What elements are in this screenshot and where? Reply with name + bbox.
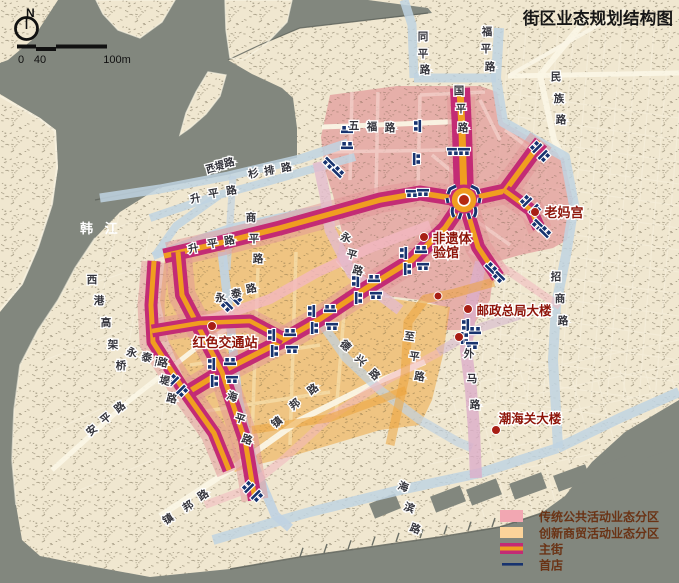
svg-text:老妈宫: 老妈宫	[543, 205, 583, 220]
svg-text:桥: 桥	[116, 359, 127, 372]
svg-text:验馆: 验馆	[433, 245, 459, 260]
svg-text:潮海关大楼: 潮海关大楼	[499, 411, 562, 426]
svg-text:招: 招	[551, 270, 562, 283]
svg-text:韩 江: 韩 江	[80, 221, 122, 236]
svg-text:国: 国	[454, 85, 465, 97]
svg-text:福: 福	[481, 25, 493, 38]
svg-text:非遗体: 非遗体	[432, 231, 472, 246]
svg-text:路: 路	[420, 63, 431, 76]
svg-text:40: 40	[34, 54, 46, 66]
svg-text:创新商贸活动业态分区: 创新商贸活动业态分区	[538, 526, 659, 541]
svg-text:平: 平	[456, 103, 467, 115]
svg-text:同: 同	[418, 31, 429, 43]
svg-text:高: 高	[101, 316, 112, 329]
svg-text:外: 外	[463, 347, 475, 360]
svg-text:架: 架	[107, 338, 119, 351]
svg-text:路: 路	[253, 252, 264, 265]
svg-text:路: 路	[556, 113, 567, 126]
svg-text:平: 平	[481, 43, 492, 55]
svg-text:平: 平	[418, 48, 429, 60]
svg-text:路: 路	[485, 60, 496, 73]
svg-text:路: 路	[558, 314, 569, 327]
svg-text:路: 路	[458, 121, 469, 134]
svg-text:路: 路	[385, 121, 396, 134]
svg-text:平: 平	[249, 233, 260, 245]
svg-text:首店: 首店	[539, 558, 563, 573]
svg-text:路: 路	[470, 398, 481, 411]
svg-text:马: 马	[467, 373, 478, 385]
svg-text:商: 商	[555, 292, 566, 305]
svg-text:西: 西	[87, 274, 98, 286]
svg-text:族: 族	[554, 92, 565, 105]
svg-text:0: 0	[18, 54, 24, 66]
svg-text:五: 五	[349, 120, 360, 132]
svg-text:邮政总局大楼: 邮政总局大楼	[476, 303, 552, 318]
svg-text:主街: 主街	[539, 542, 563, 557]
svg-text:100m: 100m	[103, 54, 131, 66]
svg-text:传统公共活动业态分区: 传统公共活动业态分区	[538, 509, 659, 524]
svg-text:商: 商	[246, 211, 257, 224]
svg-text:民: 民	[551, 71, 562, 83]
svg-text:港: 港	[94, 294, 105, 307]
svg-text:红色交通站: 红色交通站	[192, 335, 257, 350]
svg-text:街区业态规划结构图: 街区业态规划结构图	[522, 8, 673, 28]
svg-text:福: 福	[366, 120, 378, 133]
